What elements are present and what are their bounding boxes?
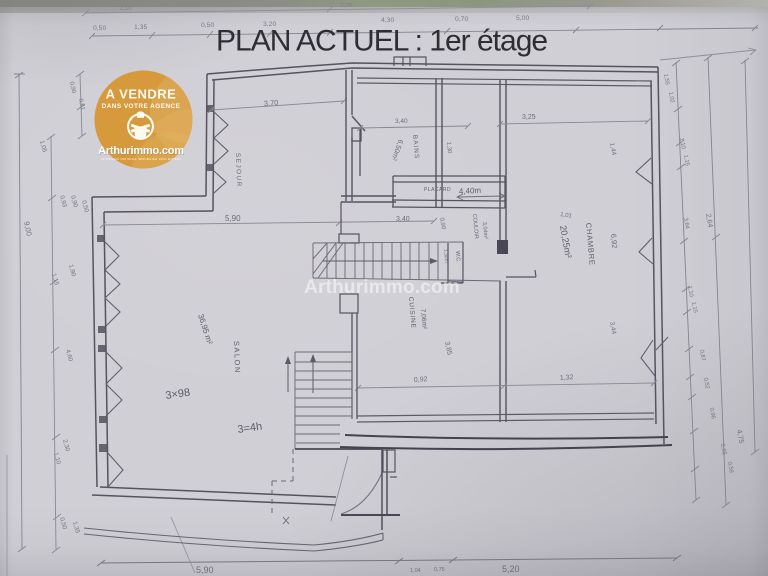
svg-text:3,40: 3,40 [395,118,408,125]
svg-text:1,90: 1,90 [67,264,77,278]
svg-text:5,20: 5,20 [502,564,520,574]
svg-text:2,65: 2,65 [719,443,727,455]
svg-text:5,90: 5,90 [196,565,214,575]
svg-text:1,10: 1,10 [678,137,686,149]
svg-text:0,59: 0,59 [726,461,734,473]
svg-text:0,90: 0,90 [69,195,79,209]
svg-text:SALON: SALON [232,341,242,374]
svg-text:1,32: 1,32 [560,374,574,382]
svg-text:7,06m²: 7,06m² [419,309,428,331]
svg-text:LE RÉSEAU NATIONAL IMMOBILIER: LE RÉSEAU NATIONAL IMMOBILIER 100% EXPER… [101,156,181,161]
svg-text:0,96: 0,96 [708,407,716,419]
svg-text:1,55: 1,55 [662,73,670,85]
svg-text:COULOIR: COULOIR [471,214,479,240]
svg-text:1,30m: 1,30m [442,249,449,263]
svg-text:2,97: 2,97 [120,5,133,12]
svg-text:0,50: 0,50 [80,200,90,214]
svg-text:0,75: 0,75 [434,567,445,573]
svg-text:0,52: 0,52 [702,377,710,389]
svg-text:3,70: 3,70 [264,98,279,108]
svg-text:3×98: 3×98 [165,387,191,402]
svg-text:3,85: 3,85 [443,341,453,356]
svg-text:1,44: 1,44 [608,142,617,156]
svg-text:1,15: 1,15 [690,301,698,313]
svg-text:1,02: 1,02 [667,91,675,103]
svg-text:0,87: 0,87 [698,349,706,361]
svg-text:20,25m²: 20,25m² [558,225,574,259]
svg-text:1,01: 1,01 [560,212,573,220]
svg-text:3=4h: 3=4h [237,421,263,436]
svg-text:1,15: 1,15 [50,273,60,287]
svg-text:BAINS: BAINS [411,135,420,160]
svg-text:CHAMBRE: CHAMBRE [584,222,597,266]
svg-text:1,10: 1,10 [686,285,694,297]
svg-text:0,50: 0,50 [93,25,106,32]
svg-text:DANS VOTRE AGENCE: DANS VOTRE AGENCE [102,103,181,110]
svg-text:SEJOUR: SEJOUR [234,153,242,188]
svg-text:1,10: 1,10 [52,452,62,466]
svg-text:Arthurimmo.com: Arthurimmo.com [304,277,460,298]
svg-text:A VENDRE: A VENDRE [106,87,177,102]
svg-text:3,25: 3,25 [522,114,536,121]
svg-text:6,92: 6,92 [609,233,619,248]
svg-text:9,00: 9,00 [22,221,34,237]
svg-text:5,90: 5,90 [225,214,241,223]
svg-text:5,00: 5,00 [516,15,529,22]
svg-text:Arthurimmo.com: Arthurimmo.com [98,145,184,157]
svg-text:1,35: 1,35 [71,521,81,535]
svg-text:1,15: 1,15 [682,154,690,166]
svg-text:2,64: 2,64 [704,213,715,228]
svg-text:0,90: 0,90 [68,81,76,94]
svg-text:3,40: 3,40 [396,216,410,223]
svg-text:4,30: 4,30 [381,17,394,24]
svg-text:1,30: 1,30 [445,142,452,155]
svg-text:4,75: 4,75 [735,429,746,444]
svg-text:0,70: 0,70 [455,16,468,23]
svg-text:2,30: 2,30 [61,439,71,453]
svg-text:W.C.: W.C. [454,251,461,264]
svg-text:3,04m²: 3,04m² [481,222,488,240]
svg-text:0,50: 0,50 [201,22,214,29]
svg-text:3,96: 3,96 [340,2,353,9]
svg-text:1,04: 1,04 [410,568,421,574]
svg-text:0,90: 0,90 [438,217,446,230]
svg-text:1,05: 1,05 [38,140,48,154]
svg-text:PLAN ACTUEL : 1er étage: PLAN ACTUEL : 1er étage [216,25,547,58]
svg-text:36,95 m²: 36,95 m² [196,313,214,346]
svg-text:3,44: 3,44 [608,321,617,335]
svg-text:CUISINE: CUISINE [407,297,417,329]
svg-text:0,93: 0,93 [58,195,68,209]
svg-text:0,50: 0,50 [58,517,68,531]
svg-text:1,35: 1,35 [134,24,147,31]
svg-text:PLACARD: PLACARD [424,187,451,193]
svg-text:6,50m²: 6,50m² [389,138,403,161]
svg-text:4,60: 4,60 [64,349,74,363]
svg-text:0,92: 0,92 [414,376,428,384]
